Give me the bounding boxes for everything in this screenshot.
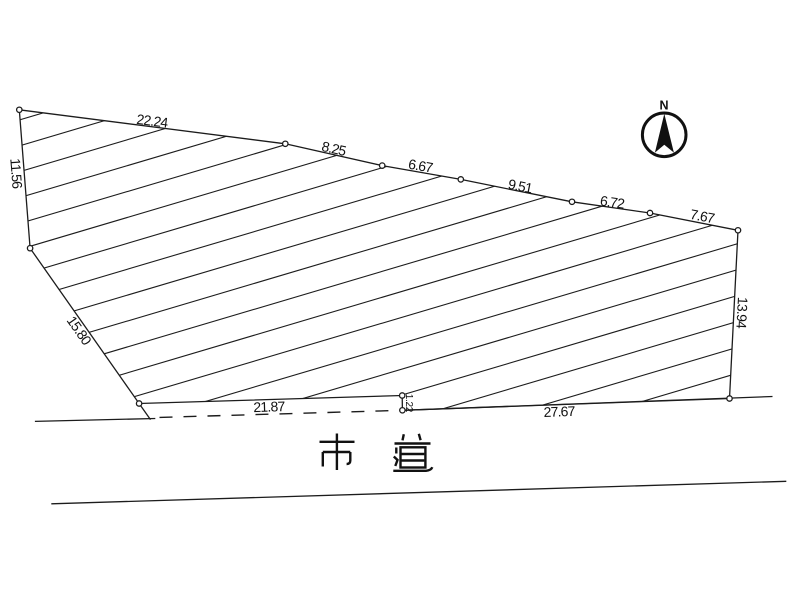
svg-text:1.22: 1.22 <box>403 394 414 413</box>
svg-text:N: N <box>659 98 668 112</box>
svg-text:6.72: 6.72 <box>599 192 626 211</box>
svg-text:21.87: 21.87 <box>253 398 286 415</box>
svg-text:15.80: 15.80 <box>64 313 96 348</box>
svg-text:22.24: 22.24 <box>136 111 170 131</box>
svg-text:7.67: 7.67 <box>689 206 717 227</box>
svg-text:6.67: 6.67 <box>407 156 434 176</box>
svg-text:9.51: 9.51 <box>507 176 535 197</box>
svg-text:11.56: 11.56 <box>7 158 25 190</box>
svg-text:13.94: 13.94 <box>733 297 751 330</box>
svg-text:27.67: 27.67 <box>543 403 576 420</box>
svg-text:8.25: 8.25 <box>320 138 348 159</box>
